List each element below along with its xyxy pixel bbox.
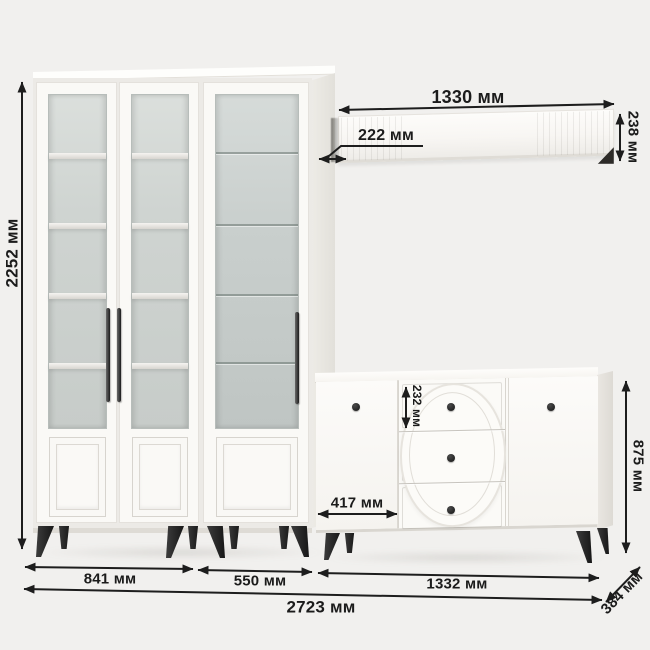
glass-shelf bbox=[216, 224, 298, 226]
dim-label-commode-height: 875 мм bbox=[631, 440, 646, 493]
commode-side-panel bbox=[597, 371, 613, 530]
drawer-knob bbox=[447, 506, 455, 514]
dim-label-shelf-height: 238 мм bbox=[626, 111, 641, 164]
commode-knob bbox=[547, 403, 555, 411]
glass-shelf bbox=[216, 294, 298, 296]
cabinet-shelf bbox=[132, 363, 188, 369]
dim-label-drawer-height: 232 мм bbox=[411, 385, 423, 427]
door-lower-panel bbox=[132, 437, 188, 517]
glass-shelf bbox=[216, 362, 298, 364]
commode-knob bbox=[352, 403, 360, 411]
cabinet-shelf bbox=[132, 153, 188, 159]
commode-door-right bbox=[508, 376, 598, 526]
tall-cabinet bbox=[33, 78, 312, 533]
dim-label-commode-depth: 384 мм bbox=[598, 569, 645, 617]
glass-panel bbox=[131, 94, 189, 429]
door-handle bbox=[117, 308, 121, 402]
dim-label-total-width: 2723 мм bbox=[286, 599, 355, 616]
cabinet-leg bbox=[58, 526, 70, 549]
floor-shadow-commode bbox=[322, 551, 610, 564]
shelf-joint-shadow bbox=[331, 118, 340, 162]
door-handle bbox=[106, 308, 110, 402]
dim-label-commode-offset: 417 мм bbox=[331, 496, 384, 511]
furniture-dimension-diagram: { "dims": { "cabinet_height": "2252 мм",… bbox=[0, 0, 650, 650]
commode-leg bbox=[344, 533, 355, 553]
shelf-fluting-right bbox=[537, 111, 611, 156]
cabinet-door-middle bbox=[119, 82, 199, 523]
dim-line-left-width bbox=[25, 567, 193, 569]
glass-panel bbox=[48, 94, 107, 429]
dim-label-shelf-width: 1330 мм bbox=[431, 88, 504, 106]
cabinet-door-left bbox=[36, 82, 117, 523]
drawer-knob bbox=[447, 454, 455, 462]
cabinet-shelf bbox=[49, 363, 106, 369]
dim-label-middle-width: 550 мм bbox=[234, 574, 287, 589]
door-lower-panel bbox=[216, 437, 298, 517]
glass-shelf bbox=[216, 152, 298, 154]
drawer-knob bbox=[447, 403, 455, 411]
cabinet-shelf bbox=[49, 223, 106, 229]
cabinet-door-right bbox=[203, 82, 309, 523]
door-handle bbox=[295, 312, 299, 404]
door-lower-panel bbox=[49, 437, 106, 517]
cabinet-shelf bbox=[132, 223, 188, 229]
commode-leg bbox=[597, 528, 609, 554]
dim-label-commode-width: 1332 мм bbox=[426, 577, 487, 592]
dim-label-left-width: 841 мм bbox=[84, 572, 137, 587]
cabinet-leg bbox=[278, 526, 290, 549]
cabinet-shelf bbox=[132, 293, 188, 299]
dim-label-cabinet-height: 2252 мм bbox=[4, 218, 21, 287]
glass-panel bbox=[215, 94, 299, 429]
cabinet-shelf bbox=[49, 293, 106, 299]
dim-label-shelf-offset: 222 мм bbox=[358, 128, 414, 144]
cabinet-shelf bbox=[49, 153, 106, 159]
